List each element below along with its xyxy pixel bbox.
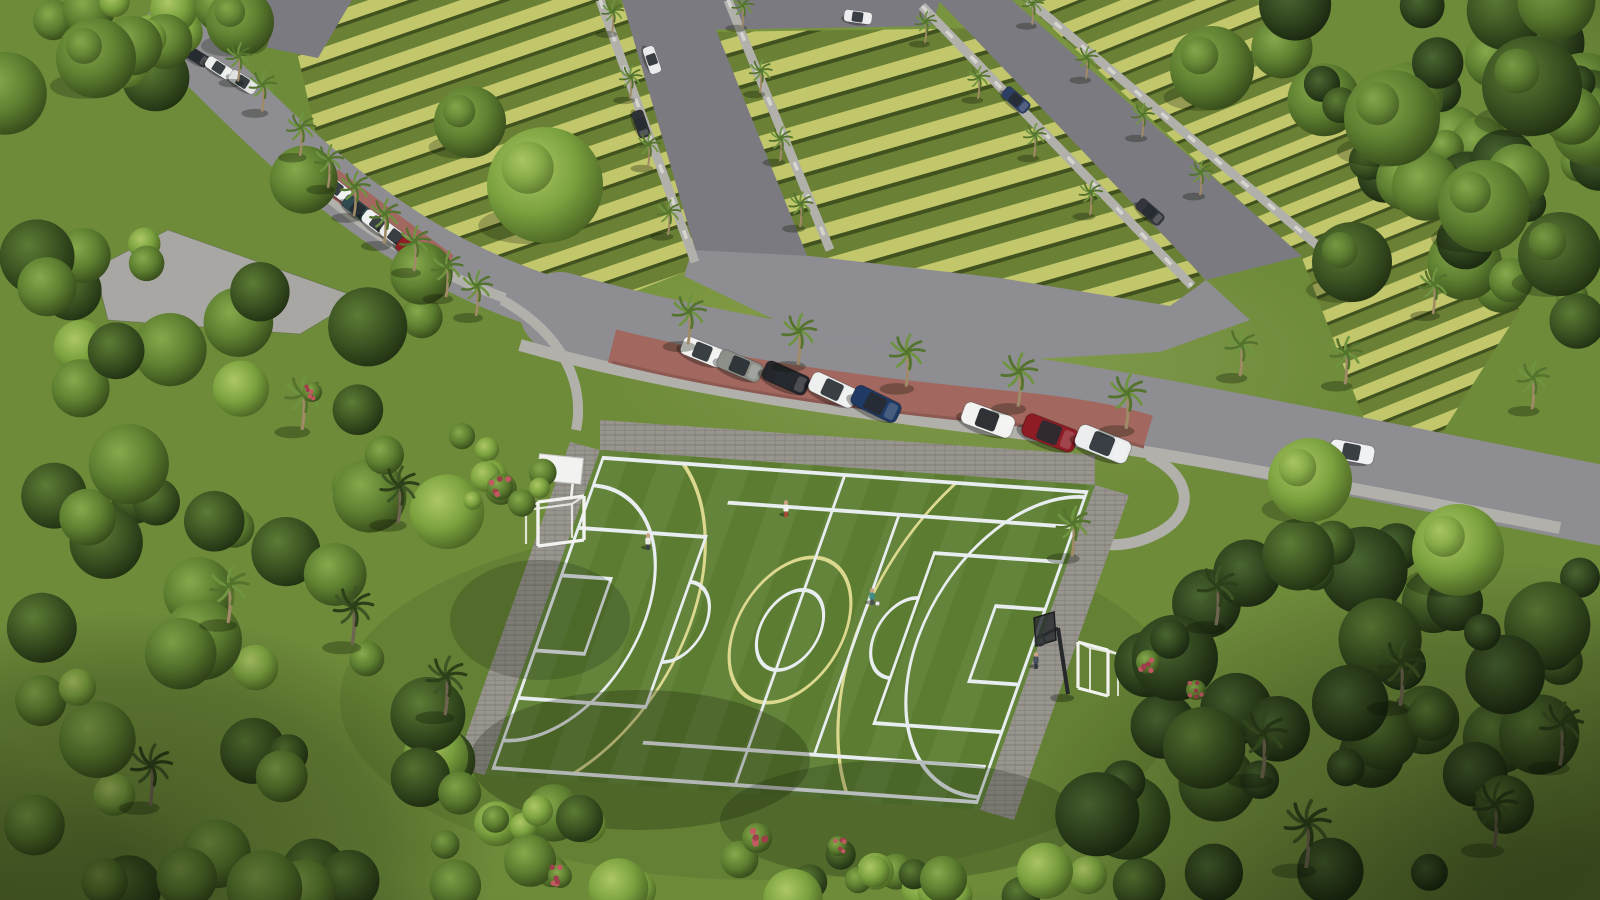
aerial-render-stage: [0, 0, 1600, 900]
aerial-subdivision-render: [0, 0, 1600, 900]
vignette: [0, 0, 1600, 900]
lighting-overlays: [0, 0, 1600, 900]
